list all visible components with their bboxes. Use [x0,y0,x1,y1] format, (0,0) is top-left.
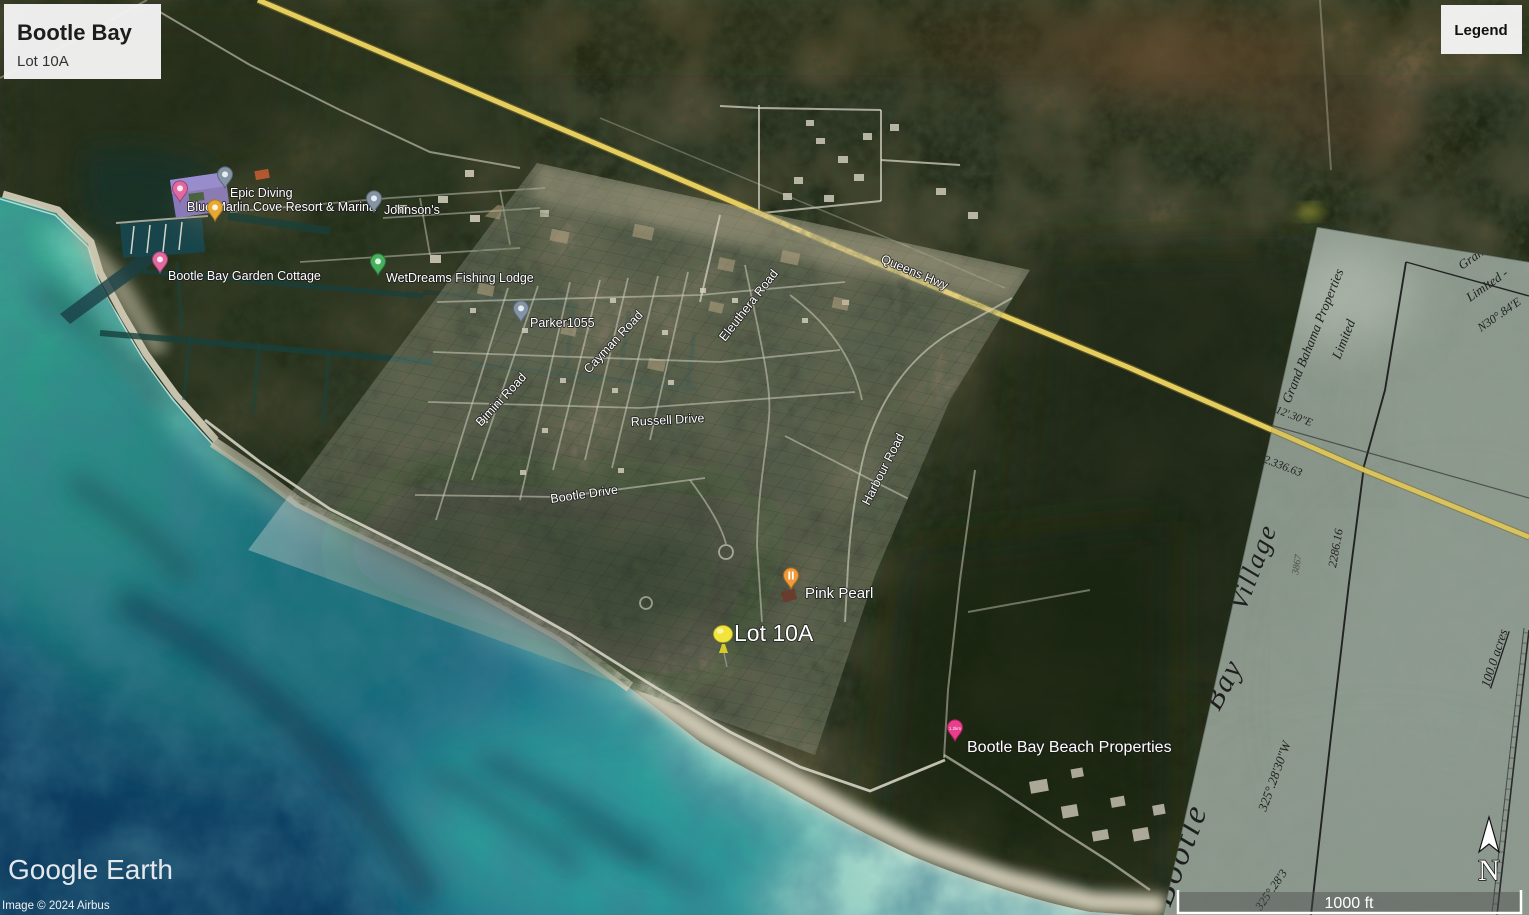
svg-text:Bootle Bay Beach Properties: Bootle Bay Beach Properties [967,739,1172,756]
svg-text:Bootle Bay Garden Cottage: Bootle Bay Garden Cottage [168,269,321,283]
svg-text:1.2km: 1.2km [949,726,962,731]
svg-text:Lot 10A: Lot 10A [734,620,814,646]
svg-text:Google Earth: Google Earth [8,854,173,885]
svg-text:Lot 10A: Lot 10A [17,53,69,70]
svg-text:Johnson's: Johnson's [384,203,440,217]
svg-text:WetDreams Fishing Lodge: WetDreams Fishing Lodge [386,271,534,285]
svg-text:Epic Diving: Epic Diving [230,186,293,200]
svg-text:Bootle Bay: Bootle Bay [17,20,133,45]
svg-text:Parker1055: Parker1055 [530,316,595,330]
svg-text:Image © 2024 Airbus: Image © 2024 Airbus [2,900,110,912]
svg-text:1000 ft: 1000 ft [1325,895,1374,912]
svg-text:Legend: Legend [1454,22,1507,39]
svg-text:N: N [1478,854,1500,887]
svg-text:Pink Pearl: Pink Pearl [805,585,873,602]
